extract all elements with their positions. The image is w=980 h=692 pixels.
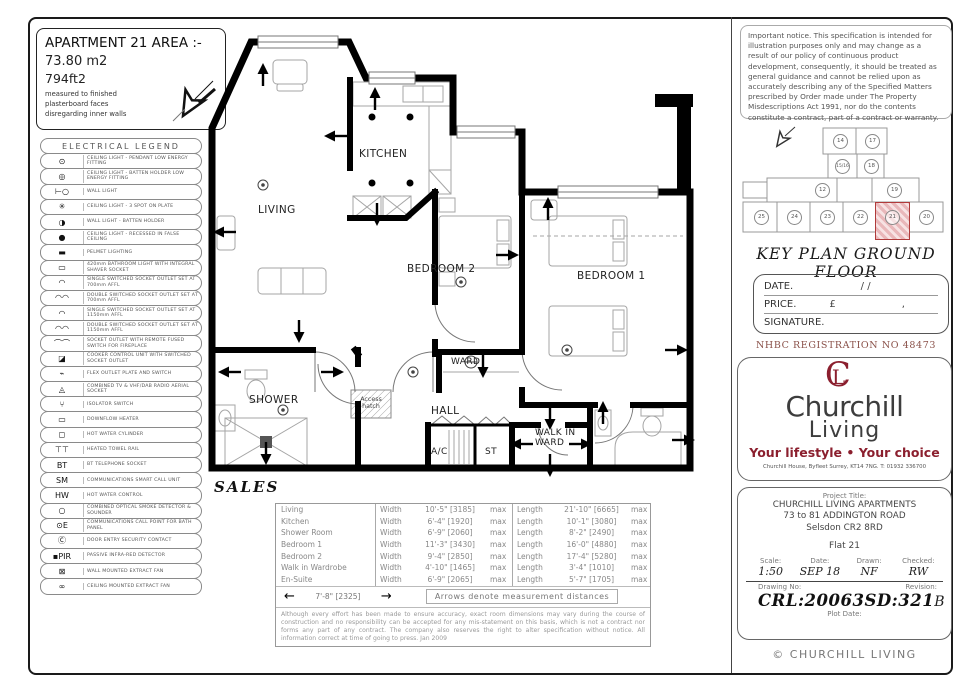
legend-symbol-icon: ⊙E [41,521,83,530]
legend-symbol-icon: ○ [41,506,83,515]
dim-width-label: Width [376,551,410,563]
legend-row: ◠ SINGLE SWITCHED SOCKET OUTLET SET AT 1… [40,305,202,321]
legend-symbol-icon: ◠◠ [41,293,83,302]
legend-row: ⊤⊤ HEATED TOWEL RAIL [40,442,202,458]
dim-length-max: max [631,516,650,528]
legend-label: CEILING LIGHT - PENDANT LOW ENERGY FITTI… [83,155,201,168]
dim-length-label: Length [512,516,552,528]
legend-row: ○ COMBINED OPTICAL SMOKE DETECTOR & SOUN… [40,503,202,519]
signature-label: SIGNATURE. [764,317,824,328]
legend-symbol-icon: ◠◠ [41,324,83,333]
legend-symbol-icon: ◪ [41,354,83,363]
brand-name-2: Living [738,420,951,442]
legend-label: HEATED TOWEL RAIL [83,446,201,453]
room-label-ac: A/C [431,447,448,457]
access-hatch-label: Access hatch [353,396,389,410]
legend-symbol-icon: BT [41,461,83,470]
dim-length-label: Length [512,574,552,586]
area-note-1: measured to finished [45,89,155,99]
legend-label: SINGLE SWITCHED SOCKET OUTLET SET AT 115… [83,307,201,320]
legend-row: ⊙E COMMUNICATIONS CALL POINT FOR BATH PA… [40,518,202,534]
drawn-label: Drawn: [845,557,894,565]
drawing-number: CRL:20063SD:321 [758,591,934,610]
dim-length-max: max [631,551,650,563]
legend-symbol-icon: ⊠ [41,567,83,576]
legend-label: WALL MOUNTED EXTRACT FAN [83,568,201,575]
dim-length-max: max [631,527,650,539]
drawing-no-label: Drawing No: [758,583,801,591]
legend-symbol-icon: ⌒⌒ [41,338,83,349]
dim-width-label: Width [376,527,410,539]
legend-symbol-icon: ✳ [41,202,83,211]
dim-room: Bedroom 2 [276,551,376,563]
legend-symbol-icon: HW [41,491,83,500]
dim-width-label: Width [376,504,410,516]
legend-row: ◑ WALL LIGHT - BATTEN HOLDER [40,214,202,230]
legend-row: HW HOT WATER CONTROL [40,487,202,503]
apartment-title: APARTMENT 21 AREA :- [45,35,217,51]
dim-room: Shower Room [276,527,376,539]
dim-width-value: 6'-9" [2065] [410,574,490,586]
legend-rows: ⊙ CEILING LIGHT - PENDANT LOW ENERGY FIT… [40,153,202,594]
dim-length-value: 3'-4" [1010] [552,562,631,574]
legend-symbol-icon: ● [41,233,83,242]
flat-number: Flat 21 [738,541,951,551]
revision-value: B [934,594,944,610]
key-plan-unit: 24 [787,210,802,225]
date-field-label: Date: [795,557,844,565]
arrow-note: Arrows denote measurement distances [426,589,618,604]
floor-plan: LIVING KITCHEN BEDROOM 2 BEDROOM 1 SHOWE… [203,20,733,492]
dim-length-max: max [631,539,650,551]
legend-label: HOT WATER CONTROL [83,492,201,499]
legend-symbol-icon: ◬ [41,385,83,394]
legend-label: SINGLE SWITCHED SOCKET OUTLET SET AT 700… [83,276,201,289]
dim-width-label: Width [376,562,410,574]
legend-symbol-icon: ⊙ [41,157,83,166]
legend-label: DOWNFLOW HEATER [83,416,201,423]
legend-label: HOT WATER CYLINDER [83,431,201,438]
legend-row: ◠◠ DOUBLE SWITCHED SOCKET OUTLET SET AT … [40,290,202,306]
legend-row: ● CEILING LIGHT - RECESSED IN FALSE CEIL… [40,229,202,245]
dim-length-value: 21'-10" [6665] [552,504,631,516]
legend-row: ◠◠ DOUBLE SWITCHED SOCKET OUTLET SET AT … [40,320,202,336]
dim-length-value: 5'-7" [1705] [552,574,631,586]
legend-row: ▪PIR PASSIVE INFRA-RED DETECTOR [40,548,202,564]
dim-width-max: max [490,574,512,586]
dim-length-value: 8'-2" [2490] [552,527,631,539]
dim-width-max: max [490,562,512,574]
brand-tagline: Your lifestyle • Your choice [738,445,951,460]
legend-row: ⊢○ WALL LIGHT [40,184,202,200]
legend-symbol-icon: SM [41,476,83,485]
legend-row: SM COMMUNICATIONS SMART CALL UNIT [40,472,202,488]
room-label-walkin: WALK IN WARD [535,429,587,449]
legend-row: ▭ DOWNFLOW HEATER [40,411,202,427]
dimensions-rows: Living Width 10'-5" [3185] max Length 21… [276,504,650,586]
room-label-hall: HALL [431,405,459,417]
legend-label: COOKER CONTROL UNIT WITH SWITCHED SOCKET… [83,352,201,365]
legend-symbol-icon: ⊤⊤ [41,445,83,454]
currency-symbol: £ [829,299,835,310]
legend-symbol-icon: ⑂ [41,400,83,409]
legend-row: ◻ HOT WATER CYLINDER [40,427,202,443]
project-title-label: Project Title: [738,492,951,500]
legend-row: ◎ CEILING LIGHT - BATTEN HOLDER LOW ENER… [40,168,202,184]
room-label-shower: SHOWER [249,394,299,406]
dim-room: Kitchen [276,516,376,528]
brand-address: Churchill House, Byfleet Surrey, KT14 7N… [738,464,951,470]
legend-row: ▬ PELMET LIGHTING [40,244,202,260]
area-note-3: disregarding inner walls [45,109,155,119]
legend-label: CEILING LIGHT - 3 SPOT ON PLATE [83,203,201,210]
dim-width-max: max [490,551,512,563]
checked-label: Checked: [894,557,943,565]
legend-label: FLEX OUTLET PLATE AND SWITCH [83,370,201,377]
price-comma: , [902,299,905,310]
dim-length-label: Length [512,551,552,563]
dim-length-value: 16'-0" [4880] [552,539,631,551]
dim-width-value: 9'-4" [2850] [410,551,490,563]
drawn-value: NF [845,565,894,578]
right-arrow-icon: → [381,589,392,604]
legend-label: CEILING LIGHT - BATTEN HOLDER LOW ENERGY… [83,170,201,183]
legend-row: ∞ CEILING MOUNTED EXTRACT FAN [40,578,202,594]
dim-length-max: max [631,504,650,516]
legend-symbol-icon: ▭ [41,263,83,272]
key-plan-unit: 12 [815,183,830,198]
dim-width-max: max [490,539,512,551]
legend-row: BT BT TELEPHONE SOCKET [40,457,202,473]
legend-symbol-icon: Ⓒ [41,535,83,546]
legend-symbol-icon: ⌁ [41,369,83,378]
legend-row: ⌁ FLEX OUTLET PLATE AND SWITCH [40,366,202,382]
key-plan-unit: 18 [864,159,879,174]
revision-label: Revision: [905,583,937,591]
brand-name-1: Churchill [738,394,951,420]
floor-plan-drawing [203,20,733,492]
copyright-text: © CHURCHILL LIVING [737,648,952,661]
dim-width-label: Width [376,574,410,586]
area-m2: 73.80 m2 [45,54,217,69]
legend-label: WALL LIGHT [83,188,201,195]
key-plan-unit: 15/16 [835,159,850,174]
scale-label: Scale: [746,557,795,565]
room-label-bedroom1: BEDROOM 1 [577,270,645,282]
room-label-living: LIVING [258,204,296,216]
legend-row: ◠ SINGLE SWITCHED SOCKET OUTLET SET AT 7… [40,275,202,291]
legend-label: COMBINED OPTICAL SMOKE DETECTOR & SOUNDE… [83,504,201,517]
room-label-ward: WARD [451,357,480,367]
dim-width-value: 6'-9" [2060] [410,527,490,539]
dim-width-value: 6'-4" [1920] [410,516,490,528]
project-line-1: CHURCHILL LIVING APARTMENTS [738,500,951,511]
legend-label: ISOLATOR SWITCH [83,401,201,408]
dim-width-label: Width [376,516,410,528]
legend-row: ⊠ WALL MOUNTED EXTRACT FAN [40,563,202,579]
project-line-2: 73 to 81 ADDINGTON ROAD [738,511,951,522]
legend-symbol-icon: ◎ [41,172,83,181]
dim-length-value: 17'-4" [5280] [552,551,631,563]
checked-value: RW [894,565,943,578]
dim-length-max: max [631,562,650,574]
legend-row: ▭ 420mm BATHROOM LIGHT WITH INTEGRAL SHA… [40,260,202,276]
legend-label: DOUBLE SWITCHED SOCKET OUTLET SET AT 115… [83,322,201,335]
date-slashes: / / [793,281,938,292]
legend-symbol-icon: ◠ [41,309,83,318]
legend-label: 420mm BATHROOM LIGHT WITH INTEGRAL SHAVE… [83,261,201,274]
dim-length-label: Length [512,527,552,539]
legend-row: ⌒⌒ SOCKET OUTLET WITH REMOTE FUSED SWITC… [40,335,202,351]
legend-symbol-icon: ◻ [41,430,83,439]
dim-length-max: max [631,574,650,586]
key-plan-unit: 14 [833,134,848,149]
dimensions-table: Living Width 10'-5" [3185] max Length 21… [275,503,651,647]
key-plan-unit: 23 [820,210,835,225]
legend-label: CEILING MOUNTED EXTRACT FAN [83,583,201,590]
title-block-rule [746,581,943,582]
dim-room: Walk in Wardrobe [276,562,376,574]
legend-row: ⑂ ISOLATOR SWITCH [40,396,202,412]
key-plan-unit: 20 [919,210,934,225]
legend-label: PASSIVE INFRA-RED DETECTOR [83,552,201,559]
apartment-area-box: APARTMENT 21 AREA :- 73.80 m2 794ft2 mea… [36,28,226,130]
dim-width-value: 11'-3" [3430] [410,539,490,551]
dimensions-disclaimer: Although every effort has been made to e… [276,607,650,646]
dim-width-max: max [490,527,512,539]
price-box: DATE. / / PRICE. £ , SIGNATURE. [753,274,949,334]
dim-length-label: Length [512,504,552,516]
important-notice: Important notice. This specification is … [740,25,952,119]
dim-room: Bedroom 1 [276,539,376,551]
legend-label: BT TELEPHONE SOCKET [83,461,201,468]
key-plan-unit: 21 [885,210,900,225]
project-line-3: Selsdon CR2 8RD [738,523,951,534]
legend-row: Ⓒ DOOR ENTRY SECURITY CONTACT [40,533,202,549]
legend-label: DOOR ENTRY SECURITY CONTACT [83,537,201,544]
legend-symbol-icon: ◠ [41,278,83,287]
key-plan: 14 17 15/16 18 12 19 25 24 23 22 21 20 [737,122,955,240]
key-plan-unit: 17 [865,134,880,149]
electrical-legend: ELECTRICAL LEGEND ⊙ CEILING LIGHT - PEND… [40,138,202,594]
date-value: SEP 18 [795,565,844,578]
dim-length-label: Length [512,539,552,551]
legend-label: WALL LIGHT - BATTEN HOLDER [83,218,201,225]
room-label-bedroom2: BEDROOM 2 [407,263,475,275]
price-label: PRICE. [764,299,796,310]
legend-label: PELMET LIGHTING [83,249,201,256]
arrow-dimension: 7'-8" [2325] [303,592,373,601]
dim-width-max: max [490,504,512,516]
dim-length-value: 10'-1" [3080] [552,516,631,528]
dim-width-max: max [490,516,512,528]
nhbc-registration: NHBC REGISTRATION NO 48473 [737,340,955,351]
legend-symbol-icon: ▭ [41,415,83,424]
legend-label: CEILING LIGHT - RECESSED IN FALSE CEILIN… [83,231,201,244]
brand-monogram-icon: CL [738,360,951,394]
key-plan-unit: 19 [887,183,902,198]
scale-value: 1:50 [746,565,795,578]
date-label: DATE. [764,281,793,292]
key-plan-unit: 25 [754,210,769,225]
key-plan-unit: 22 [853,210,868,225]
room-label-kitchen: KITCHEN [359,148,407,160]
legend-row: ◪ COOKER CONTROL UNIT WITH SWITCHED SOCK… [40,351,202,367]
legend-symbol-icon: ▪PIR [41,552,83,561]
plot-date-label: Plot Date: [738,610,951,618]
area-note-2: plasterboard faces [45,99,155,109]
room-label-st: ST [485,447,497,457]
legend-title: ELECTRICAL LEGEND [40,138,202,154]
legend-symbol-icon: ⊢○ [41,187,83,196]
legend-row: ✳ CEILING LIGHT - 3 SPOT ON PLATE [40,199,202,215]
dim-room: Living [276,504,376,516]
left-arrow-icon: ← [284,589,295,604]
legend-symbol-icon: ∞ [41,582,83,591]
dim-width-value: 10'-5" [3185] [410,504,490,516]
legend-row: ⊙ CEILING LIGHT - PENDANT LOW ENERGY FIT… [40,153,202,169]
legend-label: COMBINED TV & VHF/DAB RADIO AERIAL SOCKE… [83,383,201,396]
legend-symbol-icon: ▬ [41,248,83,257]
sales-label: SALES [214,478,279,496]
legend-label: SOCKET OUTLET WITH REMOTE FUSED SWITCH F… [83,337,201,350]
dim-width-value: 4'-10" [1465] [410,562,490,574]
legend-row: ◬ COMBINED TV & VHF/DAB RADIO AERIAL SOC… [40,381,202,397]
legend-label: DOUBLE SWITCHED SOCKET OUTLET SET AT 700… [83,292,201,305]
dim-length-label: Length [512,562,552,574]
dim-width-label: Width [376,539,410,551]
legend-symbol-icon: ◑ [41,218,83,227]
legend-label: COMMUNICATIONS SMART CALL UNIT [83,477,201,484]
legend-label: COMMUNICATIONS CALL POINT FOR BATH PANEL [83,519,201,532]
title-block: Project Title: CHURCHILL LIVING APARTMEN… [737,487,952,640]
dim-room: En-Suite [276,574,376,586]
brand-logo-box: CL Churchill Living Your lifestyle • You… [737,357,952,481]
